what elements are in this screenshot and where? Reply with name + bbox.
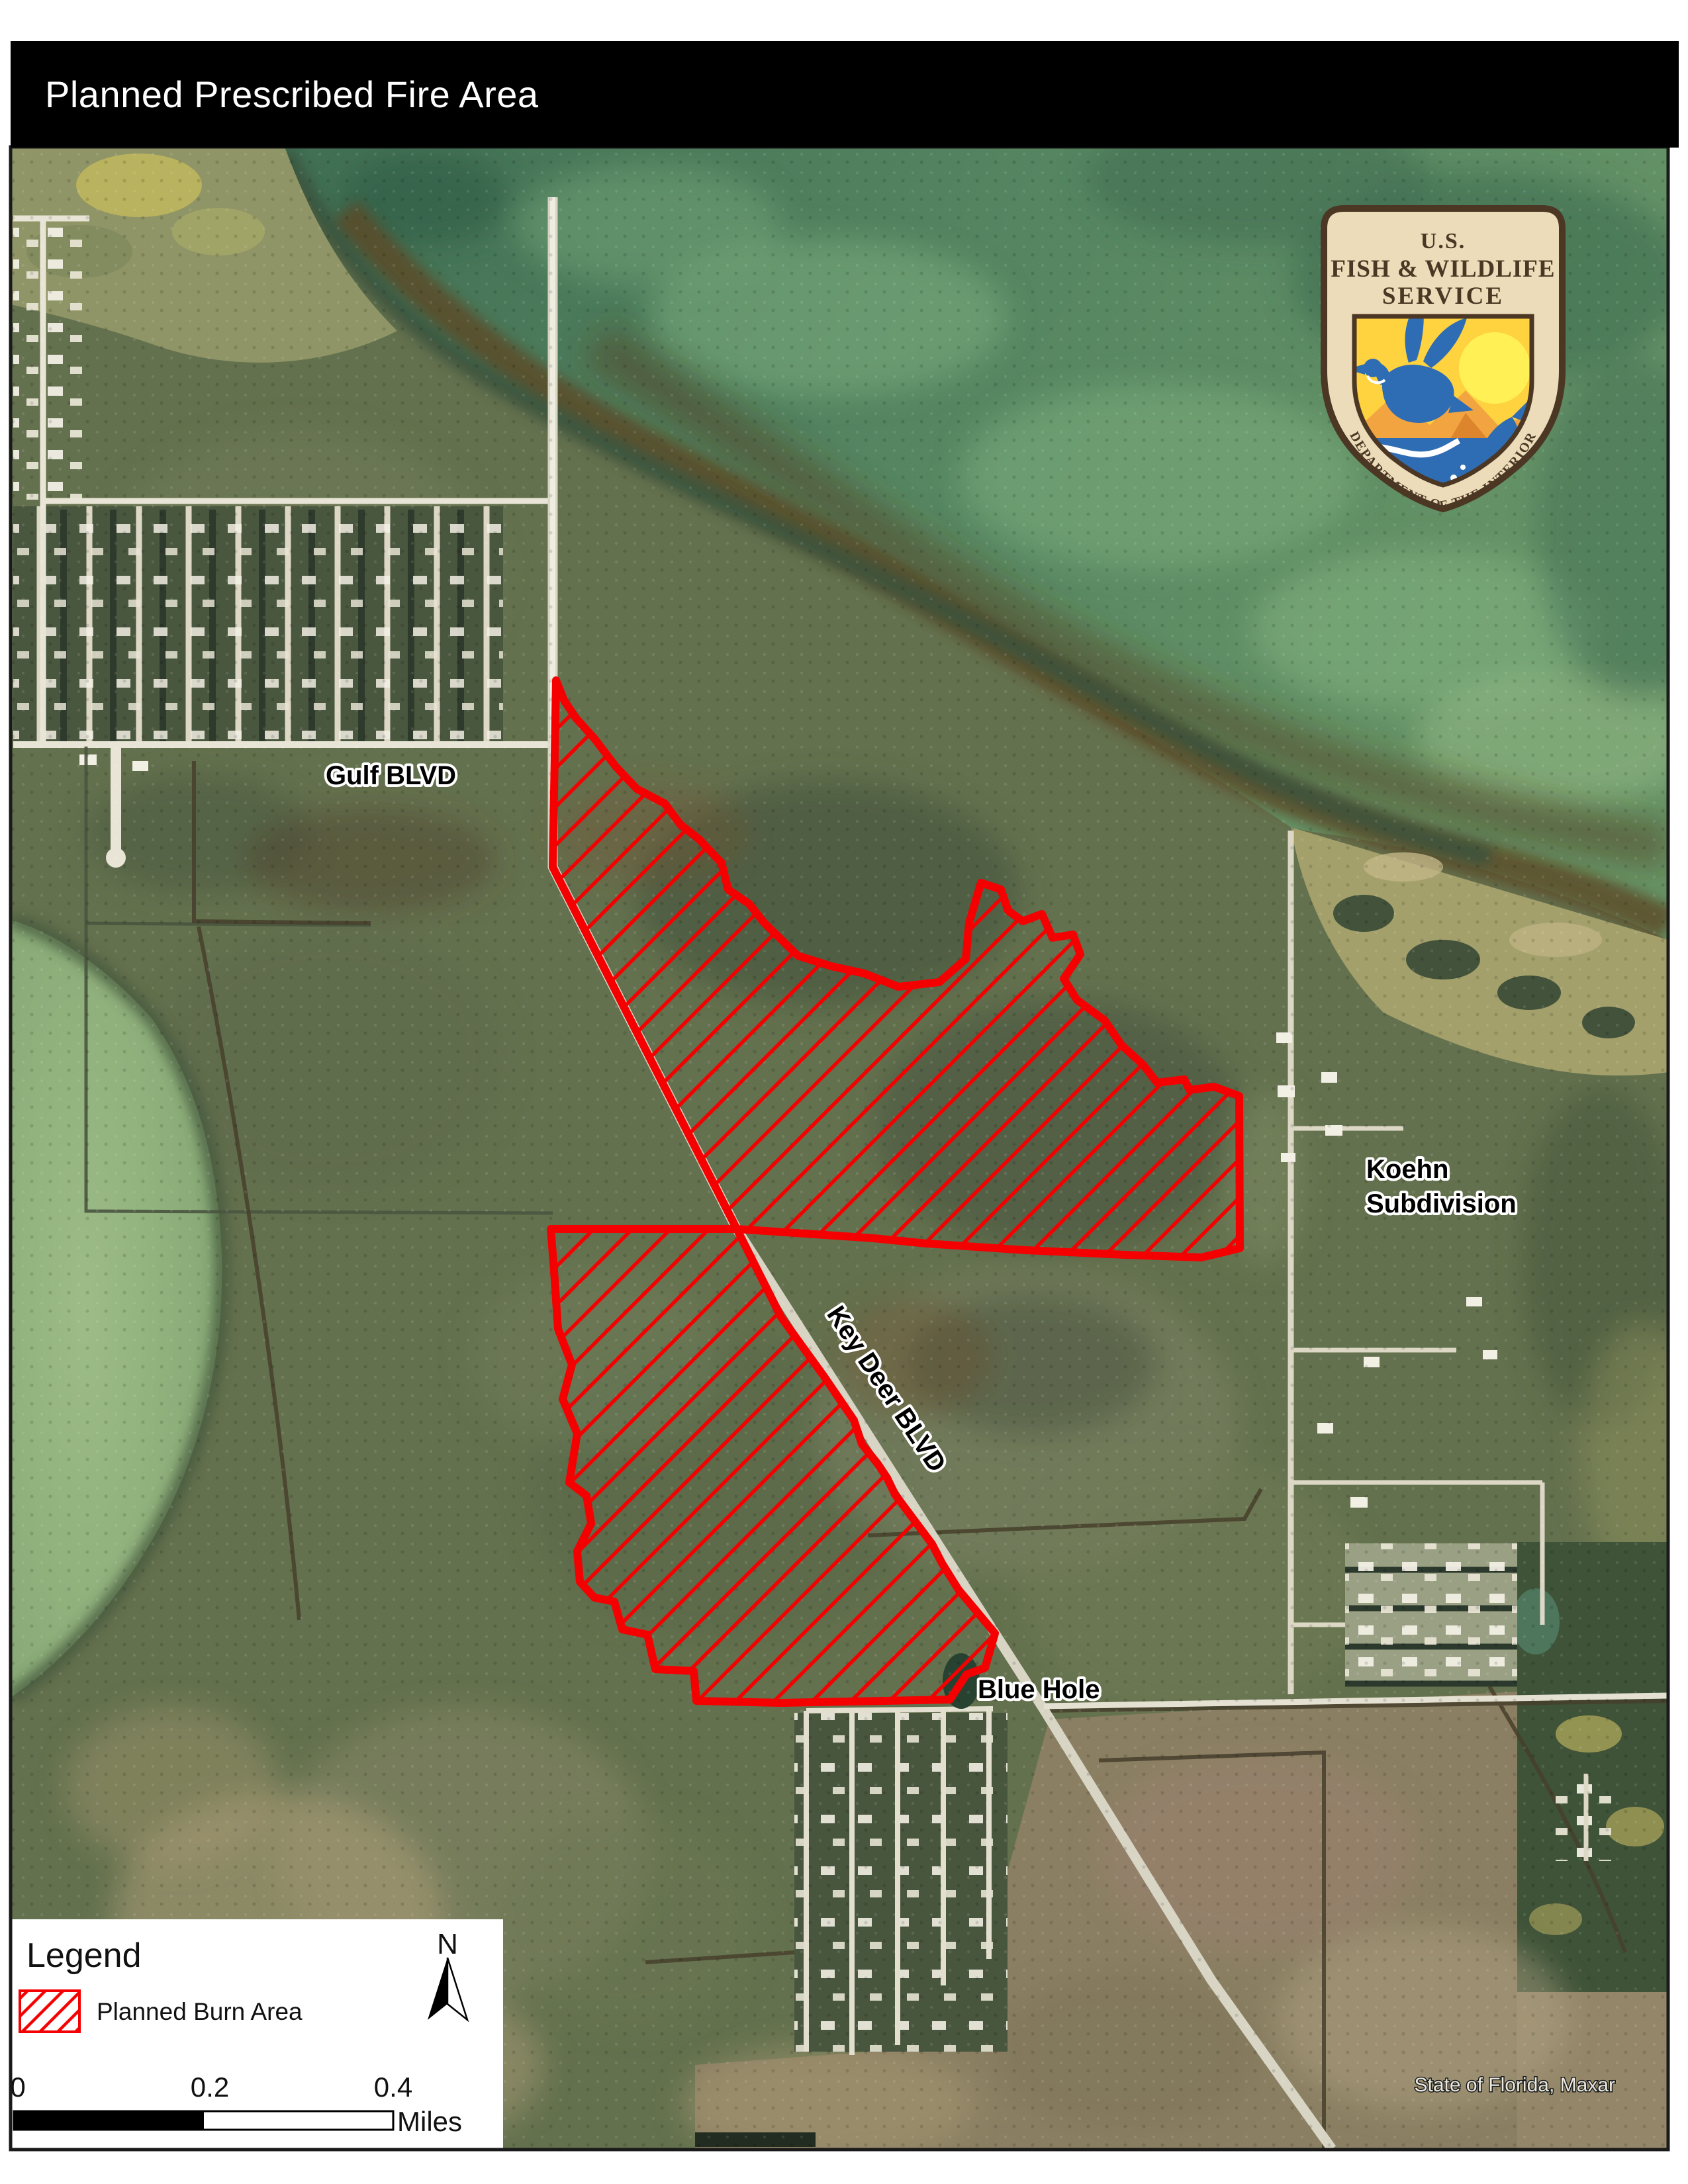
logo-line3: SERVICE xyxy=(1382,283,1504,310)
legend-burn-swatch xyxy=(20,1991,79,2032)
page-title: Planned Prescribed Fire Area xyxy=(11,73,539,116)
scale-tick-0: 0 xyxy=(10,2071,25,2103)
north-label: N xyxy=(437,1928,458,1960)
scale-tick-04: 0.4 xyxy=(374,2071,412,2103)
label-koehn-line2: Subdivision xyxy=(1366,1189,1517,1218)
scale-tick-02: 0.2 xyxy=(191,2071,229,2103)
label-koehn-line1: Koehn xyxy=(1366,1155,1448,1184)
legend-title: Legend xyxy=(26,1936,142,1975)
label-gulf-blvd: Gulf BLVD xyxy=(326,761,456,790)
logo-line2: FISH & WILDLIFE xyxy=(1331,255,1555,283)
scale-unit-label: Miles xyxy=(397,2106,462,2137)
map-area: Gulf BLVD Koehn Subdivision Key Deer BLV… xyxy=(0,0,1688,2184)
attribution-text: State of Florida, Maxar xyxy=(1415,2074,1615,2096)
legend-burn-label: Planned Burn Area xyxy=(97,1998,303,2025)
page: Gulf BLVD Koehn Subdivision Key Deer BLV… xyxy=(0,0,1688,2184)
logo-line1: U.S. xyxy=(1421,229,1466,253)
logo-sun-icon xyxy=(1459,332,1530,404)
legend-panel: Legend Planned Burn Area N 0 0.2 0.4 Mil… xyxy=(10,1919,503,2150)
title-bar: Planned Prescribed Fire Area xyxy=(11,41,1679,148)
satellite-imagery: Gulf BLVD Koehn Subdivision Key Deer BLV… xyxy=(11,113,1688,2164)
label-blue-hole: Blue Hole xyxy=(978,1675,1100,1704)
